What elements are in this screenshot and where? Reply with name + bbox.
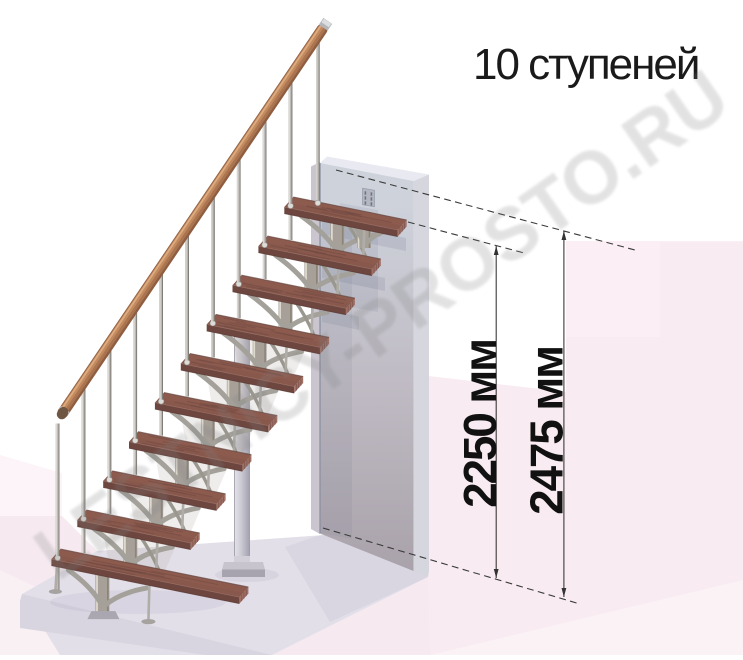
- svg-text:2250 мм: 2250 мм: [454, 340, 506, 508]
- svg-text:2475 мм: 2475 мм: [521, 347, 573, 515]
